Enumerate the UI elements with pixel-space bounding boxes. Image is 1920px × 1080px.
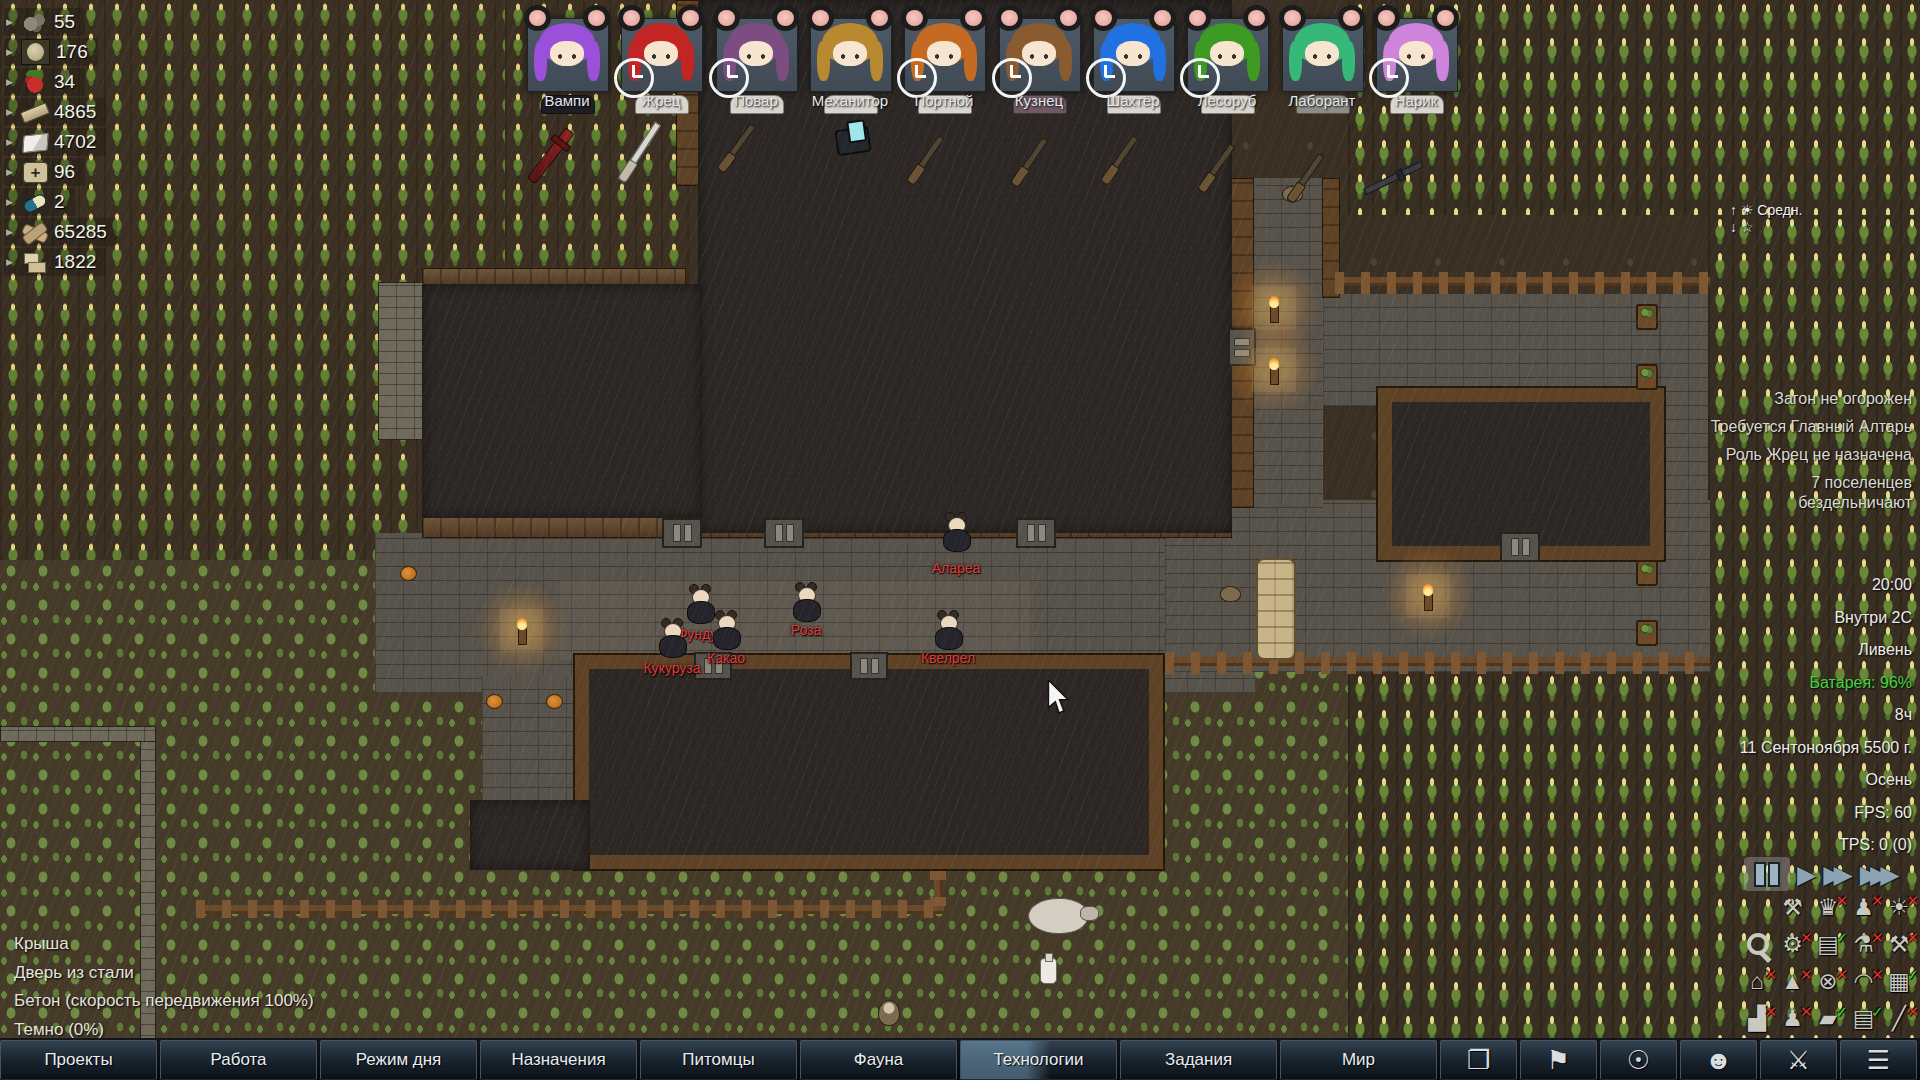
resource-row-wood[interactable]: ▶65285 <box>4 218 117 246</box>
expand-arrow-icon[interactable]: ▶ <box>6 137 15 147</box>
mouse-ear-left-icon <box>1090 5 1117 31</box>
toggle-statue-icon[interactable]: ♟✕ <box>1778 1003 1808 1034</box>
toggle-terrain-icon[interactable]: ▲✕ <box>1778 966 1808 997</box>
portrait-face <box>739 41 773 66</box>
mouse-ear-right-icon <box>677 5 704 31</box>
sheep[interactable] <box>1028 898 1098 938</box>
pumpkin[interactable] <box>546 694 563 709</box>
pawn-body <box>793 599 821 622</box>
colonist-name: Лесоруб <box>1198 92 1257 109</box>
torch[interactable] <box>1266 360 1280 382</box>
mouse-ear-left-icon <box>618 5 645 31</box>
status-line: 11 Сентоноября 5500 г. <box>1740 739 1912 772</box>
mouse-ear-left-icon <box>996 5 1023 31</box>
cell-info-line: Бетон (скорость передвижения 100%) <box>14 987 314 1016</box>
off-x-badge: ✕ <box>1906 923 1919 953</box>
bottombar-мир[interactable]: Мир <box>1280 1040 1437 1080</box>
mouse-ear-left-icon <box>1184 5 1211 31</box>
resource-count: 176 <box>56 41 88 63</box>
torch[interactable] <box>1266 298 1280 320</box>
resource-row-steel[interactable]: ▶4865 <box>4 98 106 126</box>
colonist-portrait-6[interactable]: Кузнец <box>999 18 1079 114</box>
status-line: Батарея: 96% <box>1740 674 1912 707</box>
off-x-badge: ✕ <box>1764 997 1777 1027</box>
owl[interactable] <box>878 1000 900 1026</box>
bottombar-ideology-bulb-icon[interactable]: ☉ <box>1600 1040 1677 1080</box>
bottombar-apparel-armor-icon[interactable]: ⚔ <box>1760 1040 1837 1080</box>
play-button[interactable]: ▶ <box>1797 857 1816 891</box>
off-x-badge: ✕ <box>1871 923 1884 953</box>
toggle-tools-icon[interactable]: ⚒ <box>1778 892 1808 923</box>
cell-info-line: Крыша <box>14 930 314 959</box>
torch-flame-icon <box>1269 358 1279 370</box>
pawn-body <box>713 627 741 650</box>
door[interactable] <box>764 518 804 548</box>
toggle-lightbulb-icon[interactable]: ☀✕ <box>1884 892 1914 923</box>
pawn-name-label: Алареа <box>932 560 981 576</box>
stone-blocks-icon <box>21 250 48 274</box>
status-line: Ливень <box>1740 641 1912 674</box>
off-x-badge: ✕ <box>1800 997 1813 1027</box>
bottombar-работа[interactable]: Работа <box>160 1040 317 1080</box>
toggle-fan-icon[interactable]: ⊗✕ <box>1813 966 1843 997</box>
pawn-body <box>935 627 963 650</box>
toggle-factory-icon[interactable]: ⚙✕ <box>1778 929 1808 960</box>
sheep-head <box>1080 906 1099 921</box>
weather-widget: ↑ ☀ Средн. ↓ ☆ <box>1730 202 1803 236</box>
mouse-ear-left-icon <box>1279 5 1306 31</box>
sandbag-stack <box>1256 558 1296 660</box>
stone-wall-step <box>378 282 424 440</box>
expand-arrow-icon[interactable]: ▶ <box>6 197 15 207</box>
on-check-badge: ✓ <box>1835 997 1848 1027</box>
alert[interactable]: Загон не огорожен <box>1697 389 1912 409</box>
colonist-name: Портной <box>914 92 973 109</box>
portrait-face <box>1399 41 1433 66</box>
resource-row-pill[interactable]: ▶2 <box>4 188 75 216</box>
resource-count: 34 <box>54 71 75 93</box>
pawn-name-label: Квелрел <box>921 650 975 666</box>
torch-stick <box>1270 368 1279 385</box>
building-lower <box>575 655 1163 869</box>
portrait-face <box>644 41 678 66</box>
mouse-ear-left-icon <box>1373 5 1400 31</box>
bottombar-назначения[interactable]: Назначения <box>480 1040 637 1080</box>
toggle-home-area-icon[interactable]: ⌂✕ <box>1742 966 1772 997</box>
colonist-name: Лаборант <box>1289 92 1356 109</box>
torch[interactable] <box>1420 586 1434 608</box>
resource-count: 96 <box>54 161 75 183</box>
mouse-ear-right-icon <box>960 5 987 31</box>
bottombar-проекты[interactable]: Проекты <box>0 1040 157 1080</box>
bottombar-menu-icon[interactable]: ☰ <box>1840 1040 1917 1080</box>
door[interactable] <box>850 652 888 680</box>
map-pawn[interactable] <box>791 582 821 622</box>
mouse-ear-left-icon <box>901 5 928 31</box>
game-map[interactable]: АлареаФундукРозаКакаоКукурузаКвелрел <box>0 0 1920 1080</box>
bottombar-технологии[interactable]: Технологии <box>960 1040 1117 1080</box>
portrait-face <box>1210 41 1244 66</box>
toggle-thermometer-icon[interactable]: ⚗✕ <box>1849 929 1879 960</box>
status-line: 20:00 <box>1740 576 1912 609</box>
bottombar-characters-head-icon[interactable]: ☻ <box>1680 1040 1757 1080</box>
portrait-face <box>550 41 584 66</box>
colonist-portrait-7[interactable]: Шахтёр <box>1093 18 1173 114</box>
off-x-badge: ✕ <box>1871 960 1884 990</box>
resource-row-cloth[interactable]: ▶4702 <box>4 128 106 156</box>
resource-row-egg[interactable]: ▶176 <box>4 38 98 66</box>
off-x-badge: ✕ <box>1800 923 1813 953</box>
off-x-badge: ✕ <box>1800 960 1813 990</box>
mouse-ear-right-icon <box>1243 5 1270 31</box>
expand-arrow-icon[interactable]: ▶ <box>6 47 15 57</box>
mouse-ear-right-icon <box>583 5 610 31</box>
colonist-portrait-1[interactable]: Вампи <box>527 18 607 114</box>
status-line: Внутри 2C <box>1740 609 1912 642</box>
roof-main-w <box>422 284 702 518</box>
cell-info-line: Дверь из стали <box>14 959 314 988</box>
torch-stick <box>1424 594 1433 611</box>
off-x-badge: ✕ <box>1906 997 1919 1027</box>
colonist-portrait-9[interactable]: Лаборант <box>1282 18 1362 114</box>
resource-count: 4702 <box>54 131 96 153</box>
mouse-ear-right-icon <box>1338 5 1365 31</box>
colonist-name: Жрец <box>641 92 680 109</box>
colonist-name: Кузнец <box>1015 92 1063 109</box>
status-line: 8ч <box>1740 706 1912 739</box>
map-pawn[interactable] <box>933 610 963 650</box>
torch-flame-icon <box>517 618 527 630</box>
toggle-tiles-icon[interactable]: ▦✓ <box>1884 966 1914 997</box>
resource-count: 65285 <box>54 221 107 243</box>
plant-pot[interactable] <box>1636 560 1658 586</box>
bottombar-history-book-icon[interactable]: ❐ <box>1440 1040 1517 1080</box>
egg-icon <box>21 39 50 65</box>
colonist-name: Шахтёр <box>1107 92 1160 109</box>
portrait-face <box>927 41 961 66</box>
plant-pot[interactable] <box>1636 304 1658 330</box>
pause-button[interactable] <box>1744 857 1790 891</box>
on-check-badge: ✓ <box>1871 997 1884 1027</box>
bird-corpse[interactable] <box>1220 586 1241 602</box>
pawn-name-label: Какао <box>707 650 745 666</box>
pawn-name-label: Кукуруза <box>643 660 700 676</box>
fence-pen-h <box>196 900 944 918</box>
colonist-portrait-5[interactable]: Портной <box>904 18 984 114</box>
bottom-menu-bar: ПроектыРаботаРежим дняНазначенияПитомцыФ… <box>0 1038 1920 1080</box>
resource-count: 55 <box>54 11 75 33</box>
alert[interactable]: Требуется Главный Алтарь <box>1697 417 1912 437</box>
toggle-chart-icon[interactable]: ▟✕ <box>1742 1003 1772 1034</box>
light-level-down: ↓ ☆ <box>1730 219 1803 236</box>
magnifier-shape <box>1747 933 1769 955</box>
mouse-ear-right-icon <box>1055 5 1082 31</box>
steel-icon <box>21 100 48 124</box>
resource-row-medicine[interactable]: ▶96 <box>4 158 85 186</box>
door[interactable] <box>1016 518 1056 548</box>
colonist-name: Нарик <box>1395 92 1437 109</box>
light-level-up: ↑ ☀ Средн. <box>1730 202 1803 219</box>
plant-pot[interactable] <box>1636 620 1658 646</box>
fence-top <box>1335 272 1710 294</box>
off-x-badge: ✕ <box>1906 886 1919 916</box>
torch-flame-icon <box>1269 296 1279 308</box>
colonist-portrait-2[interactable]: Жрец <box>621 18 701 114</box>
colonist-name: Механитор <box>812 92 888 109</box>
resource-row-stone-blocks[interactable]: ▶1822 <box>4 248 106 276</box>
mouse-ear-right-icon <box>772 5 799 31</box>
on-check-badge: ✓ <box>1835 923 1848 953</box>
view-toggles: ⚒♛✕♟✕☀✕⚙✕▤✓⚗✕⚒✕⌂✕▲✕⊗✕◠✕▦✓▟✕♟✕▰✓▤✓╱✕ <box>1742 892 1920 1040</box>
stone-chunks-icon <box>21 10 48 34</box>
milk-bottle[interactable] <box>1040 958 1057 984</box>
portrait-face <box>1116 41 1150 66</box>
wood-icon <box>21 220 48 244</box>
toggle-pawn-paths-icon[interactable]: ♟✕ <box>1849 892 1879 923</box>
toggle-trophy-icon[interactable]: ♛✕ <box>1813 892 1843 923</box>
portrait-face <box>1305 41 1339 66</box>
toggle-search-icon[interactable] <box>1742 929 1772 960</box>
colonist-name: Вампи <box>544 92 589 109</box>
plant-pot[interactable] <box>1636 364 1658 390</box>
map-pawn[interactable] <box>711 610 741 650</box>
toggle-zones-icon[interactable]: ▰✓ <box>1813 1003 1843 1034</box>
stone-wall-bl-h <box>0 726 156 742</box>
pawn-name-label: Роза <box>791 622 822 638</box>
pill-icon <box>21 190 48 214</box>
toggle-plans-icon[interactable]: ╱✕ <box>1884 1003 1914 1034</box>
resource-row-stone-chunks[interactable]: ▶55 <box>4 8 85 36</box>
mouse-ear-right-icon <box>1149 5 1176 31</box>
mouse-ear-left-icon <box>524 5 551 31</box>
portrait-face <box>833 41 867 66</box>
mouse-ear-left-icon <box>807 5 834 31</box>
map-pawn[interactable] <box>941 512 971 552</box>
toggle-hatchet-icon[interactable]: ⚒✕ <box>1884 929 1914 960</box>
torch[interactable] <box>514 620 528 642</box>
map-pawn[interactable] <box>657 618 687 658</box>
status-line: Осень <box>1740 771 1912 804</box>
status-line: FPS: 60 <box>1740 804 1912 837</box>
door[interactable] <box>1500 532 1540 562</box>
cell-inspect-readout: КрышаДверь из сталиБетон (скорость перед… <box>14 930 314 1044</box>
colonist-portrait-10[interactable]: Нарик <box>1376 18 1456 114</box>
expand-arrow-icon[interactable]: ▶ <box>6 257 15 267</box>
toggle-roof-overlay-icon[interactable]: ◠✕ <box>1849 966 1879 997</box>
colonist-portrait-3[interactable]: Повар <box>716 18 796 114</box>
pumpkin[interactable] <box>486 694 503 709</box>
expand-arrow-icon[interactable]: ▶ <box>6 77 15 87</box>
bottombar-задания[interactable]: Задания <box>1120 1040 1277 1080</box>
fence-south <box>1165 652 1710 674</box>
alert[interactable]: 7 поселенцев бездельничают <box>1697 473 1912 513</box>
expand-arrow-icon[interactable]: ▶ <box>6 107 15 117</box>
colonist-portrait-8[interactable]: Лесоруб <box>1187 18 1267 114</box>
resource-row-berries[interactable]: ▶34 <box>4 68 85 96</box>
mouse-ear-right-icon <box>866 5 893 31</box>
resource-count: 4865 <box>54 101 96 123</box>
bottombar-factions-flag-icon[interactable]: ⚑ <box>1520 1040 1597 1080</box>
pawn-body <box>659 635 687 658</box>
toggle-panels-icon[interactable]: ▤✓ <box>1849 1003 1879 1034</box>
off-x-badge: ✕ <box>1871 886 1884 916</box>
portrait-face <box>1022 41 1056 66</box>
off-x-badge: ✕ <box>1835 886 1848 916</box>
cloth-icon <box>21 130 48 154</box>
expand-arrow-icon[interactable]: ▶ <box>6 227 15 237</box>
torch-flame-icon <box>1423 584 1433 596</box>
resource-count: 2 <box>54 191 65 213</box>
resource-count: 1822 <box>54 251 96 273</box>
pumpkin[interactable] <box>400 566 417 581</box>
bottombar-режим дня[interactable]: Режим дня <box>320 1040 477 1080</box>
crop-field-bottomright <box>1348 672 1708 1080</box>
expand-arrow-icon[interactable]: ▶ <box>6 17 15 27</box>
medicine-icon <box>21 160 48 184</box>
off-x-badge: ✕ <box>1835 960 1848 990</box>
toggle-storage-icon[interactable]: ▤✓ <box>1813 929 1843 960</box>
building-lower-annexroof <box>470 800 590 870</box>
door[interactable] <box>662 518 702 548</box>
colonist-portrait-4[interactable]: Механитор <box>810 18 890 114</box>
expand-arrow-icon[interactable]: ▶ <box>6 167 15 177</box>
colonist-name: Повар <box>734 92 778 109</box>
status-panel: 20:00Внутри 2CЛивеньБатарея: 96%8ч11 Сен… <box>1740 576 1912 869</box>
mouse-cursor <box>1046 680 1070 718</box>
torch-stick <box>518 628 527 645</box>
alerts-panel: Загон не огороженТребуется Главный Алтар… <box>1697 389 1912 521</box>
alert[interactable]: Роль Жрец не назначена <box>1697 445 1912 465</box>
bottombar-питомцы[interactable]: Питомцы <box>640 1040 797 1080</box>
sheep-body <box>1028 898 1088 934</box>
berries-icon <box>21 70 48 94</box>
on-check-badge: ✓ <box>1906 960 1919 990</box>
bottombar-фауна[interactable]: Фауна <box>800 1040 957 1080</box>
pawn-body <box>943 529 971 552</box>
off-x-badge: ✕ <box>1764 960 1777 990</box>
smartgun-item[interactable] <box>834 126 871 156</box>
mouse-ear-left-icon <box>713 5 740 31</box>
mouse-ear-right-icon <box>1432 5 1459 31</box>
